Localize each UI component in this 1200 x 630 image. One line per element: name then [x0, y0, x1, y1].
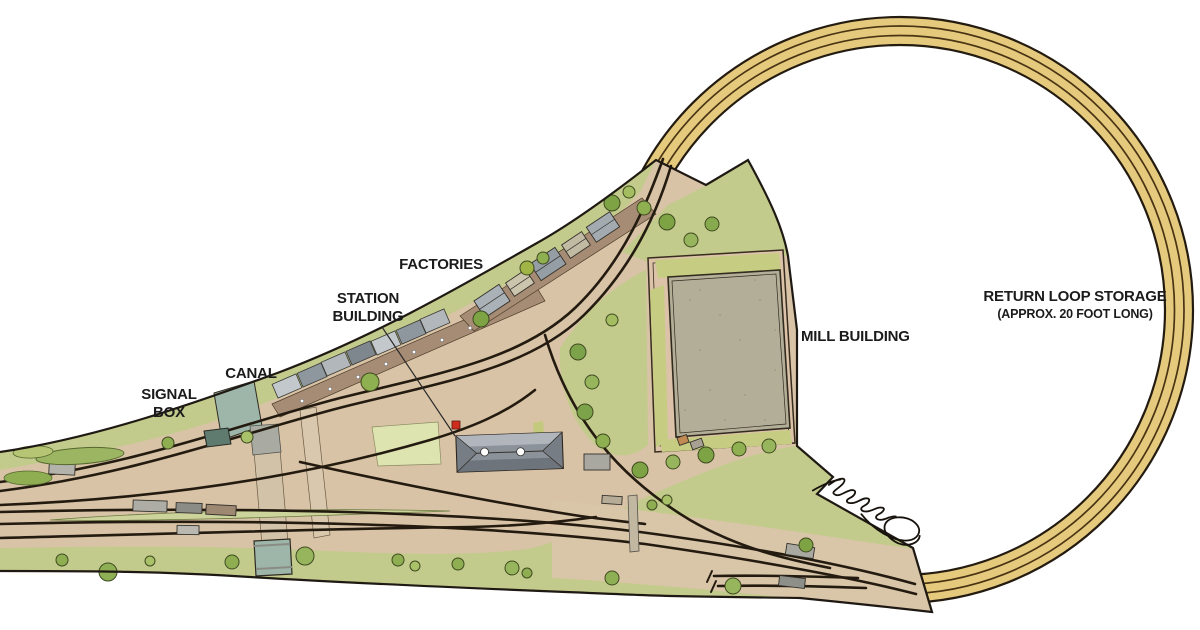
tree-icon [537, 252, 549, 264]
tree-icon [666, 455, 680, 469]
tree-icon [56, 554, 68, 566]
station-building-label-line2: BUILDING [333, 308, 404, 325]
tree-icon [662, 495, 672, 505]
tree-icon [473, 311, 489, 327]
texture-dot [774, 329, 776, 331]
tree-icon [585, 375, 599, 389]
walkway-dot [356, 375, 360, 379]
texture-dot [754, 279, 756, 281]
station-building [456, 432, 563, 472]
return-loop-label-line1: RETURN LOOP STORAGE [983, 288, 1166, 305]
texture-dot [724, 419, 726, 421]
tree-icon [145, 556, 155, 566]
tree-icon [361, 373, 379, 391]
signal-box-building [204, 428, 231, 447]
walkway-dot [384, 362, 388, 366]
tree-icon [162, 437, 174, 449]
mill-building-label: MILL BUILDING [801, 328, 910, 345]
hedge [4, 471, 52, 485]
tree-icon [296, 547, 314, 565]
wagon [206, 504, 236, 516]
walkway-dot [468, 326, 472, 330]
track-plan-svg: FACTORIES STATION BUILDING CANAL SIGNAL … [0, 0, 1200, 630]
tree-icon [606, 314, 618, 326]
signal-box-label-line2: BOX [153, 404, 185, 421]
chimney [516, 448, 524, 456]
wagon [176, 503, 202, 514]
texture-dot [739, 339, 741, 341]
wagon [602, 495, 623, 504]
canal-label: CANAL [225, 365, 277, 382]
wagon [584, 454, 610, 470]
texture-dot [759, 299, 761, 301]
loading-dock [628, 495, 639, 552]
track-plan-illustration: FACTORIES STATION BUILDING CANAL SIGNAL … [0, 0, 1200, 630]
tree-icon [410, 561, 420, 571]
texture-dot [709, 389, 711, 391]
tree-icon [577, 404, 593, 420]
signal-marker [452, 421, 460, 429]
tree-icon [392, 554, 404, 566]
signal-box-label-line1: SIGNAL [141, 386, 197, 403]
tree-icon [241, 431, 253, 443]
tree-icon [799, 538, 813, 552]
chimney [480, 448, 488, 456]
texture-dot [699, 289, 701, 291]
mill-complex [648, 250, 795, 452]
tree-icon [632, 462, 648, 478]
walkway-dot [328, 387, 332, 391]
tree-icon [647, 500, 657, 510]
tree-icon [698, 447, 714, 463]
texture-dot [744, 394, 746, 396]
station-building-label-line1: STATION [337, 290, 399, 307]
station-lawn [372, 422, 441, 466]
texture-dot [774, 369, 776, 371]
mill-building [668, 270, 790, 437]
tree-icon [762, 439, 776, 453]
tree-icon [452, 558, 464, 570]
tree-icon [705, 217, 719, 231]
tree-icon [732, 442, 746, 456]
tree-icon [505, 561, 519, 575]
factories-label: FACTORIES [399, 256, 483, 273]
tree-icon [596, 434, 610, 448]
tree-icon [570, 344, 586, 360]
walkway-dot [440, 338, 444, 342]
tree-icon [659, 214, 675, 230]
tree-icon [684, 233, 698, 247]
tree-icon [623, 186, 635, 198]
tree-icon [522, 568, 532, 578]
texture-dot [684, 409, 686, 411]
return-loop-label-line2: (APPROX. 20 FOOT LONG) [997, 307, 1152, 321]
texture-dot [689, 299, 691, 301]
wagon [133, 500, 167, 512]
tree-icon [605, 571, 619, 585]
texture-dot [719, 314, 721, 316]
tree-icon [225, 555, 239, 569]
tree-icon [637, 201, 651, 215]
walkway-dot [300, 399, 304, 403]
wagon [177, 525, 199, 534]
walkway-dot [412, 350, 416, 354]
tree-icon [725, 578, 741, 594]
texture-dot [699, 349, 701, 351]
texture-dot [764, 419, 766, 421]
tree-icon [520, 261, 534, 275]
